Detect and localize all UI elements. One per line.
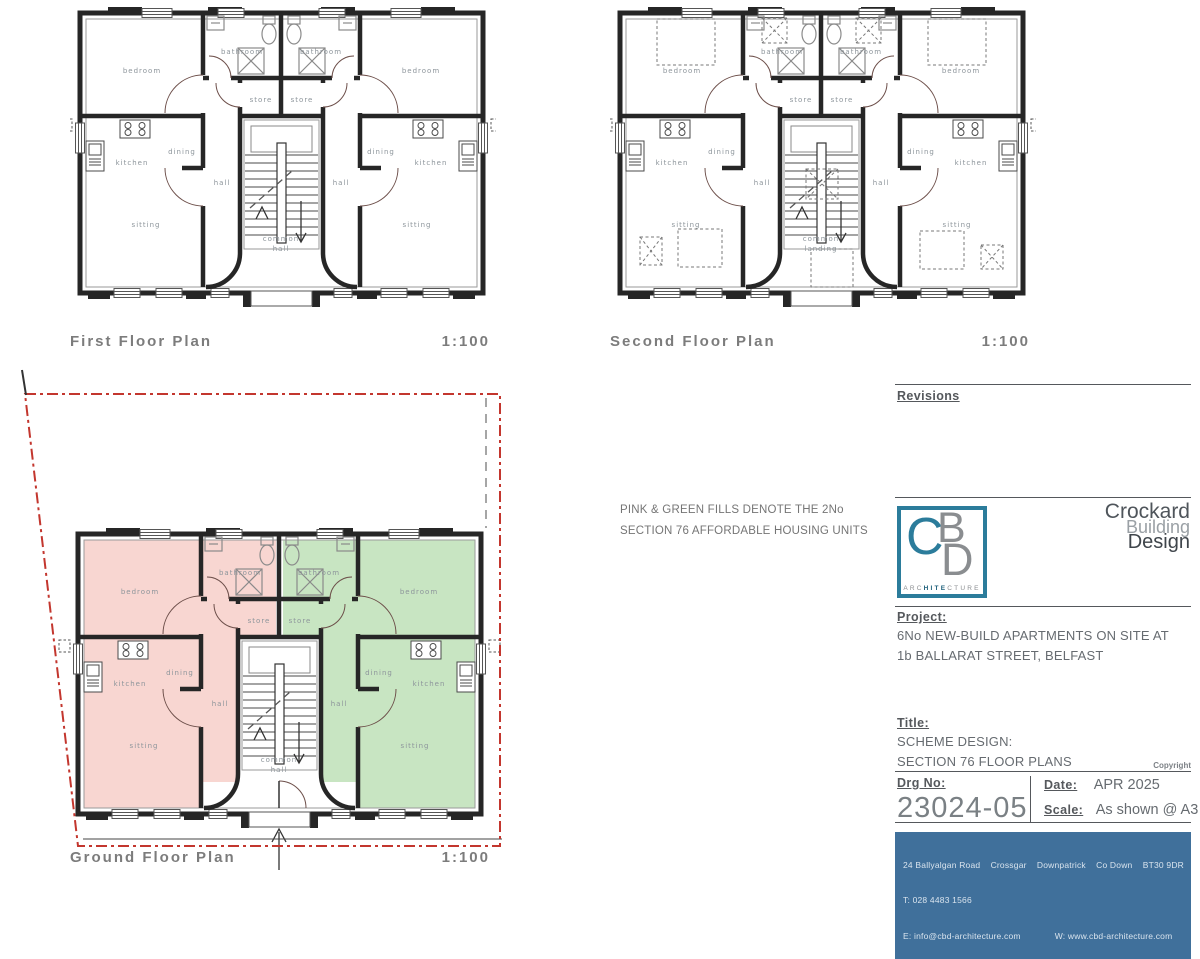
project-line-1: 6No NEW-BUILD APARTMENTS ON SITE AT: [897, 626, 1191, 646]
date-value: APR 2025: [1094, 777, 1160, 793]
room-label: kitchen: [413, 680, 446, 688]
logo-architecture-text: ARCHITECTURE: [901, 585, 983, 592]
plan-scale: 1:100: [442, 849, 490, 866]
room-label: kitchen: [955, 159, 988, 167]
boundary-corner-mark: [22, 370, 26, 395]
affordable-housing-note: PINK & GREEN FILLS DENOTE THE 2No SECTIO…: [620, 500, 920, 542]
drg-no-value: 23024-05: [897, 792, 1028, 825]
room-label: bathroom: [219, 569, 261, 577]
cbd-architecture-logo: C B D ARCHITECTURE: [897, 506, 987, 598]
room-label: bathroom: [298, 569, 340, 577]
drg-no-heading: Drg No:: [897, 776, 946, 790]
date-row: Date: APR 2025: [1044, 776, 1160, 794]
footer-phone: T: 028 4483 1566: [903, 895, 1183, 907]
title-block-rule: [895, 771, 1191, 772]
first-floor-plan-drawing: bedroom bedroom bathroom bathroom store …: [70, 3, 496, 309]
room-label: bedroom: [663, 67, 701, 75]
logo-arch-post: CTURE: [947, 585, 980, 592]
room-label: store: [250, 96, 273, 104]
logo-arch-mid: HITE: [924, 585, 948, 592]
room-label: hall: [873, 179, 890, 187]
room-label: common: [803, 235, 840, 243]
scale-value: As shown @ A3: [1096, 802, 1199, 818]
scale-row: Scale: As shown @ A3: [1044, 801, 1198, 819]
ground-floor-caption: Ground Floor Plan 1:100: [70, 849, 490, 866]
title-block-divider: [1030, 776, 1031, 822]
room-label: bedroom: [942, 67, 980, 75]
room-label: common: [261, 756, 298, 764]
room-label: store: [289, 617, 312, 625]
plan-scale: 1:100: [982, 333, 1030, 350]
room-label: sitting: [672, 221, 701, 229]
first-floor-caption: First Floor Plan 1:100: [70, 333, 490, 350]
room-label: store: [831, 96, 854, 104]
room-label: bathroom: [221, 48, 263, 56]
title-block-rule: [895, 384, 1191, 385]
footer-email: E: info@cbd-architecture.com: [903, 931, 1021, 941]
plan-scale: 1:100: [442, 333, 490, 350]
room-label: dining: [168, 148, 196, 156]
project-line-2: 1b BALLARAT STREET, BELFAST: [897, 646, 1191, 666]
room-label: store: [248, 617, 271, 625]
contact-footer-bar: 24 Ballyalgan Road Crossgar Downpatrick …: [895, 832, 1191, 959]
footer-web: W: www.cbd-architecture.com: [1055, 931, 1173, 941]
scale-heading: Scale:: [1044, 803, 1083, 817]
room-label: store: [790, 96, 813, 104]
room-label: sitting: [403, 221, 432, 229]
room-label: dining: [365, 669, 393, 677]
footer-email-web: E: info@cbd-architecture.comW: www.cbd-a…: [903, 931, 1183, 943]
drawing-sheet: { "plans": { "first": { "title": "First …: [0, 0, 1200, 875]
title-block-rule: [895, 606, 1191, 607]
room-label: bedroom: [400, 588, 438, 596]
room-label: kitchen: [116, 159, 149, 167]
room-label: hall: [271, 766, 288, 774]
revisions-heading: Revisions: [897, 389, 960, 403]
title-line-1: SCHEME DESIGN:: [897, 732, 1191, 752]
room-label: sitting: [130, 742, 159, 750]
company-line-3: Design: [1040, 532, 1190, 552]
room-label: common: [263, 235, 300, 243]
room-label: hall: [273, 245, 290, 253]
title-heading: Title:: [897, 716, 929, 730]
room-label: hall: [754, 179, 771, 187]
room-label: sitting: [401, 742, 430, 750]
logo-arch-pre: ARC: [903, 585, 923, 592]
company-name: Crockard Building Design: [1040, 501, 1190, 552]
note-line-2: SECTION 76 AFFORDABLE HOUSING UNITS: [620, 521, 920, 542]
room-label: bathroom: [300, 48, 342, 56]
room-label: kitchen: [415, 159, 448, 167]
room-label: sitting: [943, 221, 972, 229]
room-label: kitchen: [114, 680, 147, 688]
room-label: hall: [331, 700, 348, 708]
room-label: kitchen: [656, 159, 689, 167]
plan-title: First Floor Plan: [70, 333, 212, 350]
footer-address: 24 Ballyalgan Road Crossgar Downpatrick …: [903, 860, 1183, 872]
room-label: dining: [166, 669, 194, 677]
room-label: store: [291, 96, 314, 104]
copyright-text: Copyright: [895, 761, 1191, 770]
room-label: bedroom: [402, 67, 440, 75]
logo-letter-d: D: [941, 537, 974, 582]
room-label: sitting: [132, 221, 161, 229]
plan-title: Second Floor Plan: [610, 333, 776, 350]
project-text: 6No NEW-BUILD APARTMENTS ON SITE AT 1b B…: [897, 626, 1191, 666]
room-label: hall: [333, 179, 350, 187]
room-label: bedroom: [123, 67, 161, 75]
room-label: hall: [212, 700, 229, 708]
second-floor-caption: Second Floor Plan 1:100: [610, 333, 1030, 350]
ground-floor-plan-drawing: bedroom bedroom bathroom bathroom store …: [15, 368, 510, 875]
title-block-rule: [895, 822, 1191, 823]
room-label: dining: [907, 148, 935, 156]
room-label: hall: [214, 179, 231, 187]
second-floor-plan-drawing: bedroom bedroom bathroom bathroom store …: [610, 3, 1036, 309]
note-line-1: PINK & GREEN FILLS DENOTE THE 2No: [620, 500, 920, 521]
room-label: bathroom: [761, 48, 803, 56]
plan-title: Ground Floor Plan: [70, 849, 236, 866]
room-label: dining: [708, 148, 736, 156]
room-label: bathroom: [840, 48, 882, 56]
room-label: dining: [367, 148, 395, 156]
project-heading: Project:: [897, 610, 947, 624]
room-label: bedroom: [121, 588, 159, 596]
room-label: landing: [805, 245, 838, 253]
date-heading: Date:: [1044, 778, 1077, 792]
title-block-rule: [895, 497, 1191, 498]
